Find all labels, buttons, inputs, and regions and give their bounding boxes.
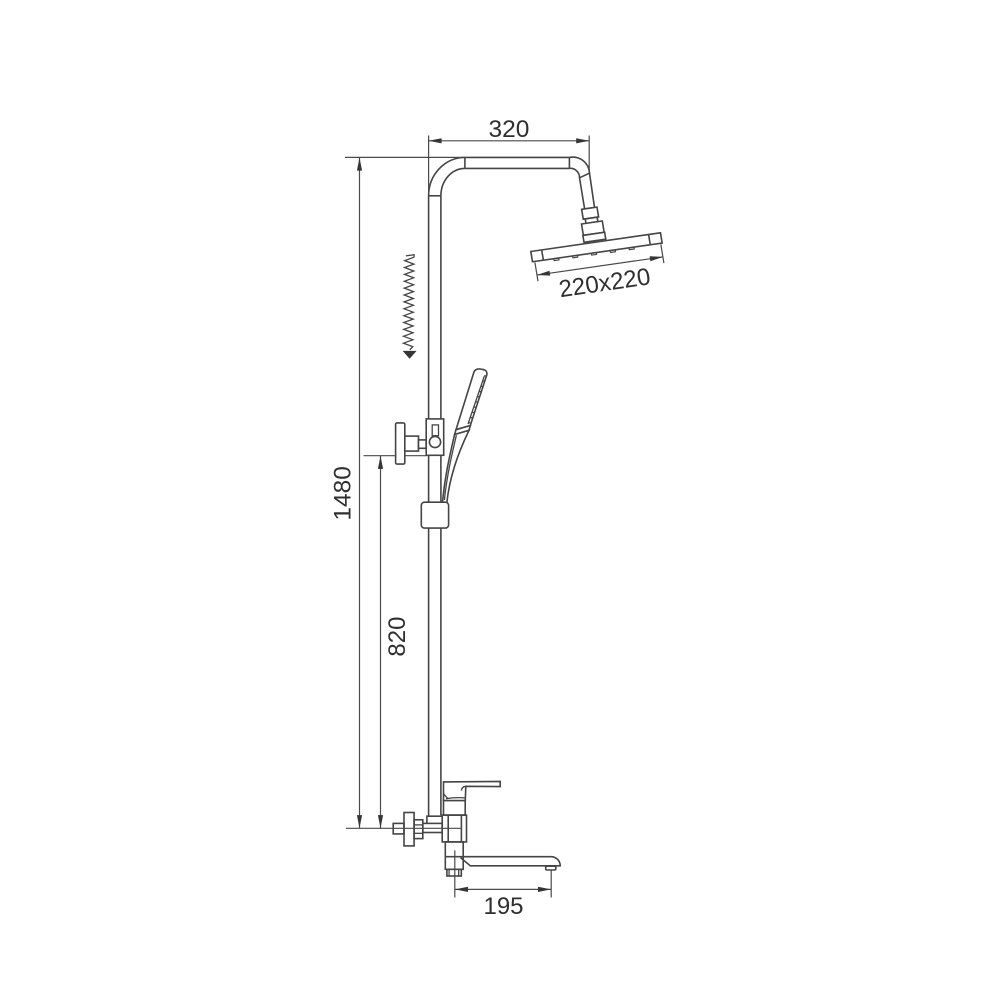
svg-text:1480: 1480 — [330, 466, 357, 521]
svg-text:195: 195 — [483, 893, 523, 920]
svg-text:820: 820 — [384, 617, 411, 657]
svg-text:320: 320 — [488, 116, 529, 143]
